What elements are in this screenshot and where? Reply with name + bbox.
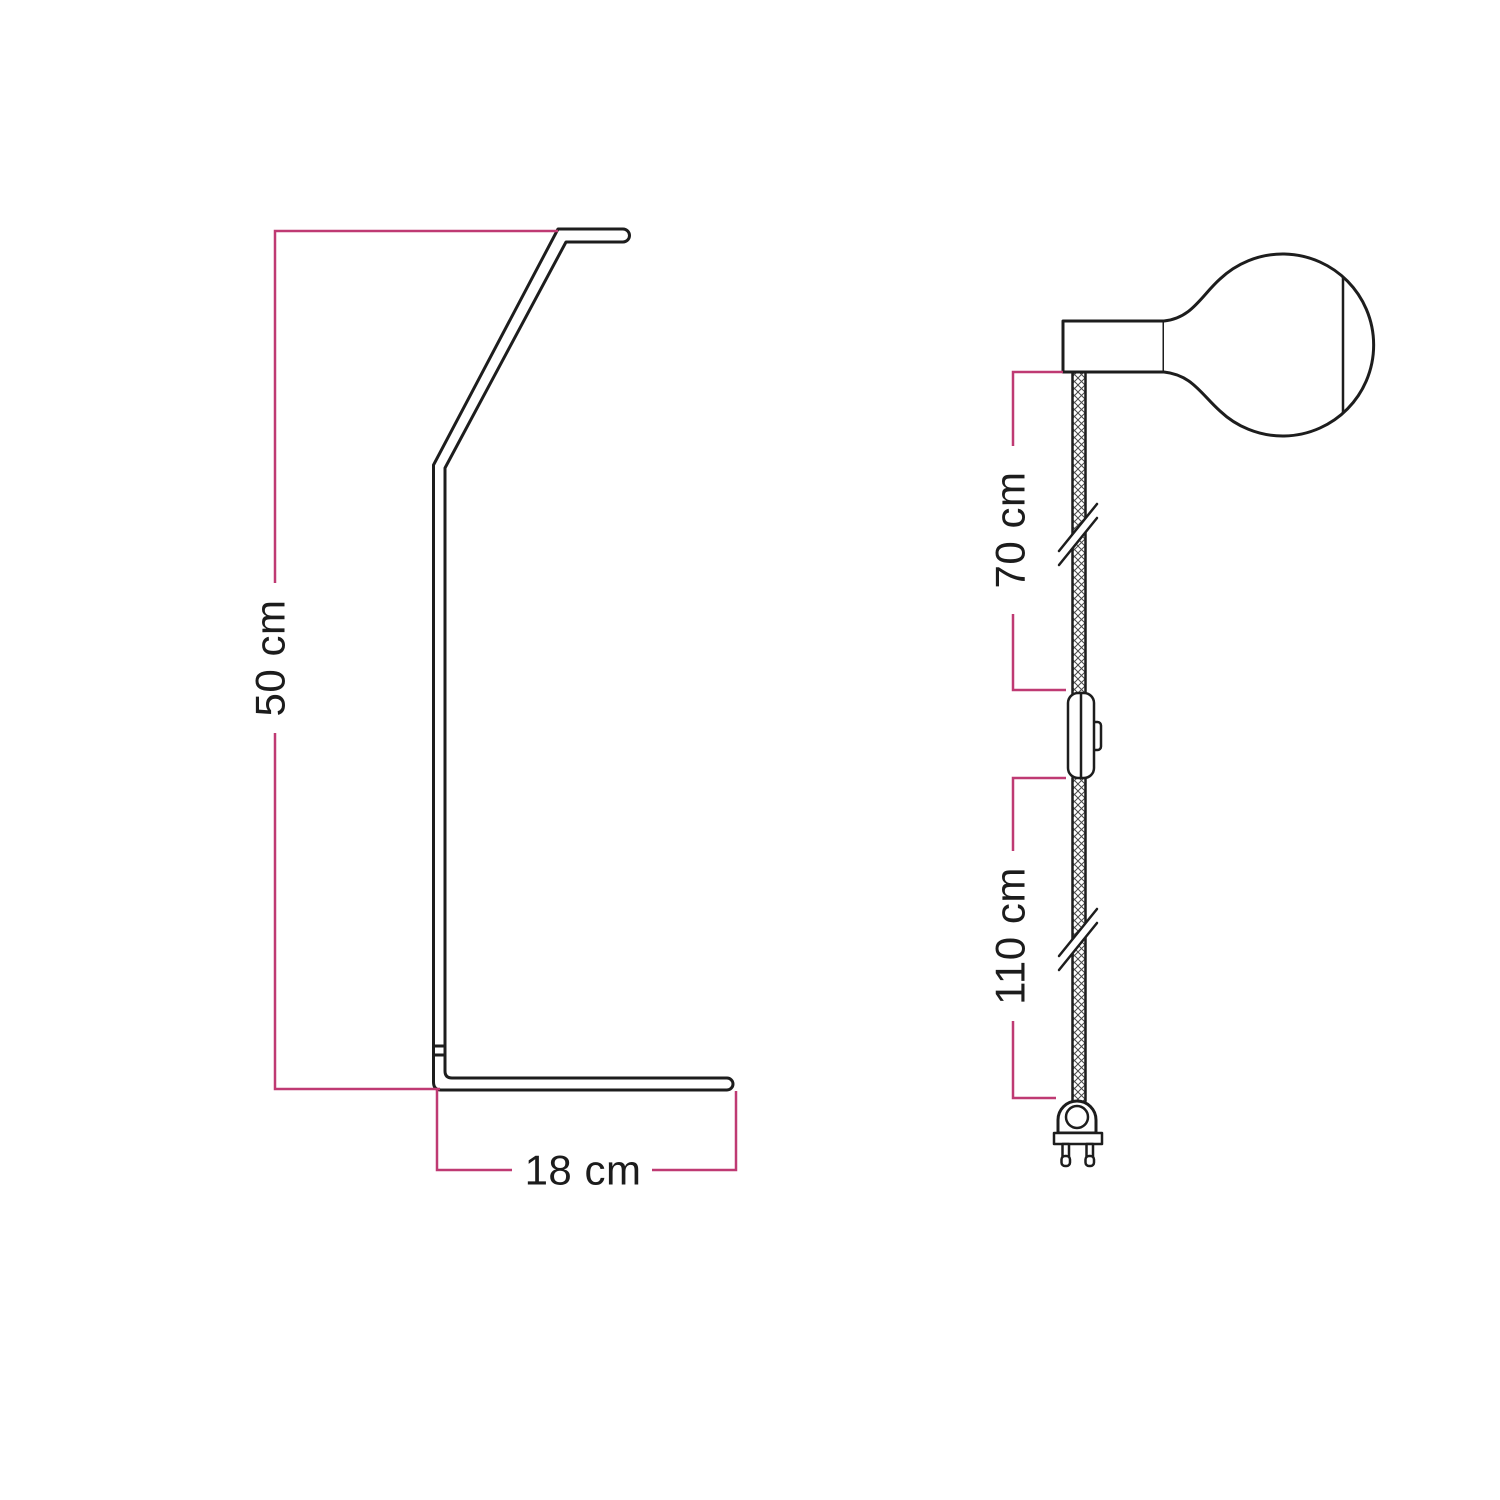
lamp-dimensions-diagram: 50 cm 18 cm 70 cm 110 cm [0, 0, 1500, 1500]
label-lower-cable: 110 cm [987, 867, 1034, 1005]
label-upper-cable: 70 cm [987, 472, 1034, 589]
plug-pin-left-tip [1062, 1156, 1071, 1166]
dimension-drawing-canvas: 50 cm 18 cm 70 cm 110 cm [0, 0, 1500, 1500]
lamp-socket [1063, 321, 1164, 372]
plug-pin-right-tip [1086, 1156, 1095, 1166]
label-stand-height: 50 cm [247, 600, 294, 717]
plug-base [1054, 1133, 1102, 1144]
label-base-width: 18 cm [525, 1147, 642, 1194]
background [0, 0, 1500, 1500]
plug-hole [1066, 1106, 1088, 1128]
